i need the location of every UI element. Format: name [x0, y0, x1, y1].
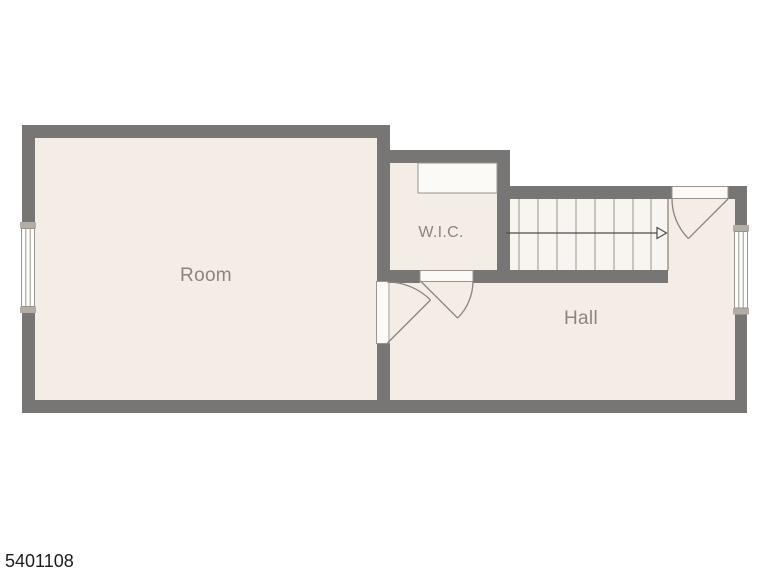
- wall-divider-upper: [377, 125, 390, 282]
- room-label: Room: [180, 265, 232, 287]
- wall-wic-bottom: [388, 270, 420, 283]
- wall-wic-top: [383, 150, 510, 163]
- wall-wic-right: [497, 150, 510, 283]
- wic-door: [420, 271, 473, 282]
- wall-top: [22, 125, 390, 138]
- staircase: [510, 199, 668, 271]
- window-sill-icon: [733, 225, 749, 232]
- floor-plan-drawing: [0, 0, 768, 576]
- window-sill-icon: [20, 307, 36, 314]
- window-right: [733, 225, 749, 315]
- wic-label: W.I.C.: [418, 224, 463, 242]
- entry-door: [672, 187, 728, 199]
- window-sill-icon: [733, 308, 749, 315]
- wall-bottom: [22, 400, 747, 413]
- floor-plan: Room W.I.C. Hall 5401108: [0, 0, 768, 576]
- room-door: [377, 282, 390, 344]
- wall-stairs-bottom: [473, 270, 668, 283]
- window-sill-icon: [20, 222, 36, 229]
- wall-stairs-top: [510, 186, 672, 199]
- window-left: [20, 222, 36, 313]
- stairs-floor: [510, 199, 668, 270]
- wic-closet-niche: [418, 163, 497, 193]
- plan-id: 5401108: [5, 551, 74, 572]
- hall-label: Hall: [564, 308, 598, 330]
